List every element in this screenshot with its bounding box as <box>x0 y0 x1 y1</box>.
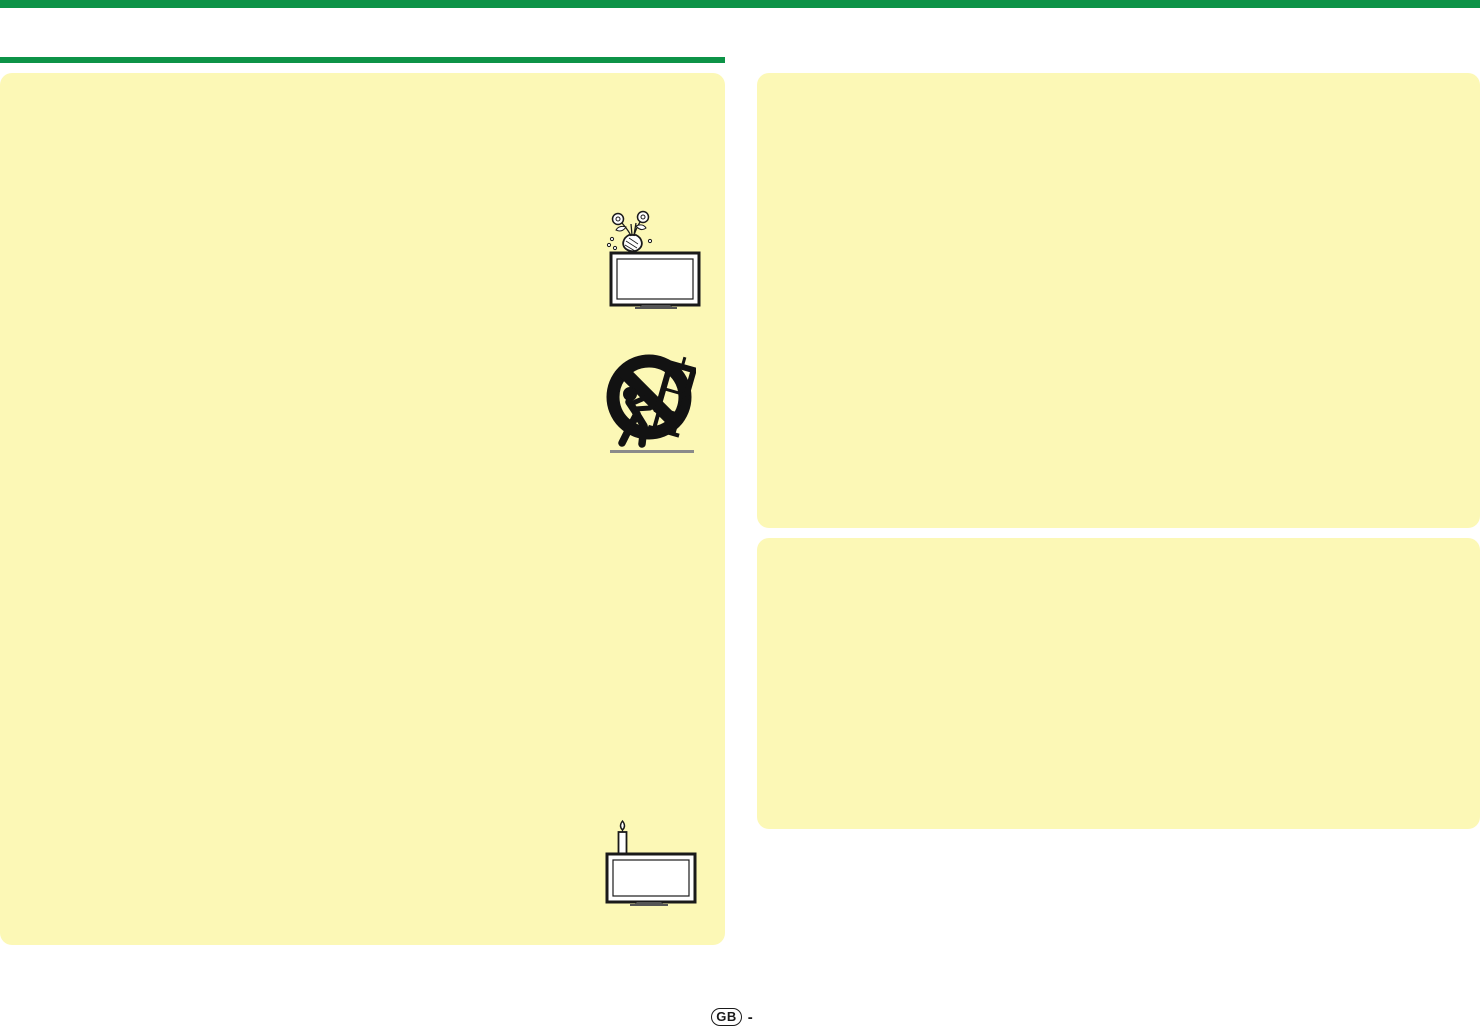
page-footer: GB - <box>0 1008 1472 1026</box>
tv-vase-water-warning-svg <box>592 210 710 310</box>
tv-candle-flame-warning-icon <box>601 818 699 908</box>
right-bottom-panel <box>757 538 1480 829</box>
top-green-bar <box>0 0 1480 8</box>
tv-vase-water-warning-icon <box>592 210 710 310</box>
no-cart-tipover-prohibition-svg <box>601 352 696 455</box>
no-cart-tipover-prohibition-icon <box>601 352 696 455</box>
footer-language-badge: GB <box>711 1008 742 1026</box>
tv-candle-flame-warning-svg <box>601 818 699 908</box>
footer-page-separator: - <box>748 1009 753 1026</box>
right-top-panel <box>757 73 1480 528</box>
left-safety-panel <box>0 73 725 945</box>
section-heading-rule <box>0 57 725 63</box>
